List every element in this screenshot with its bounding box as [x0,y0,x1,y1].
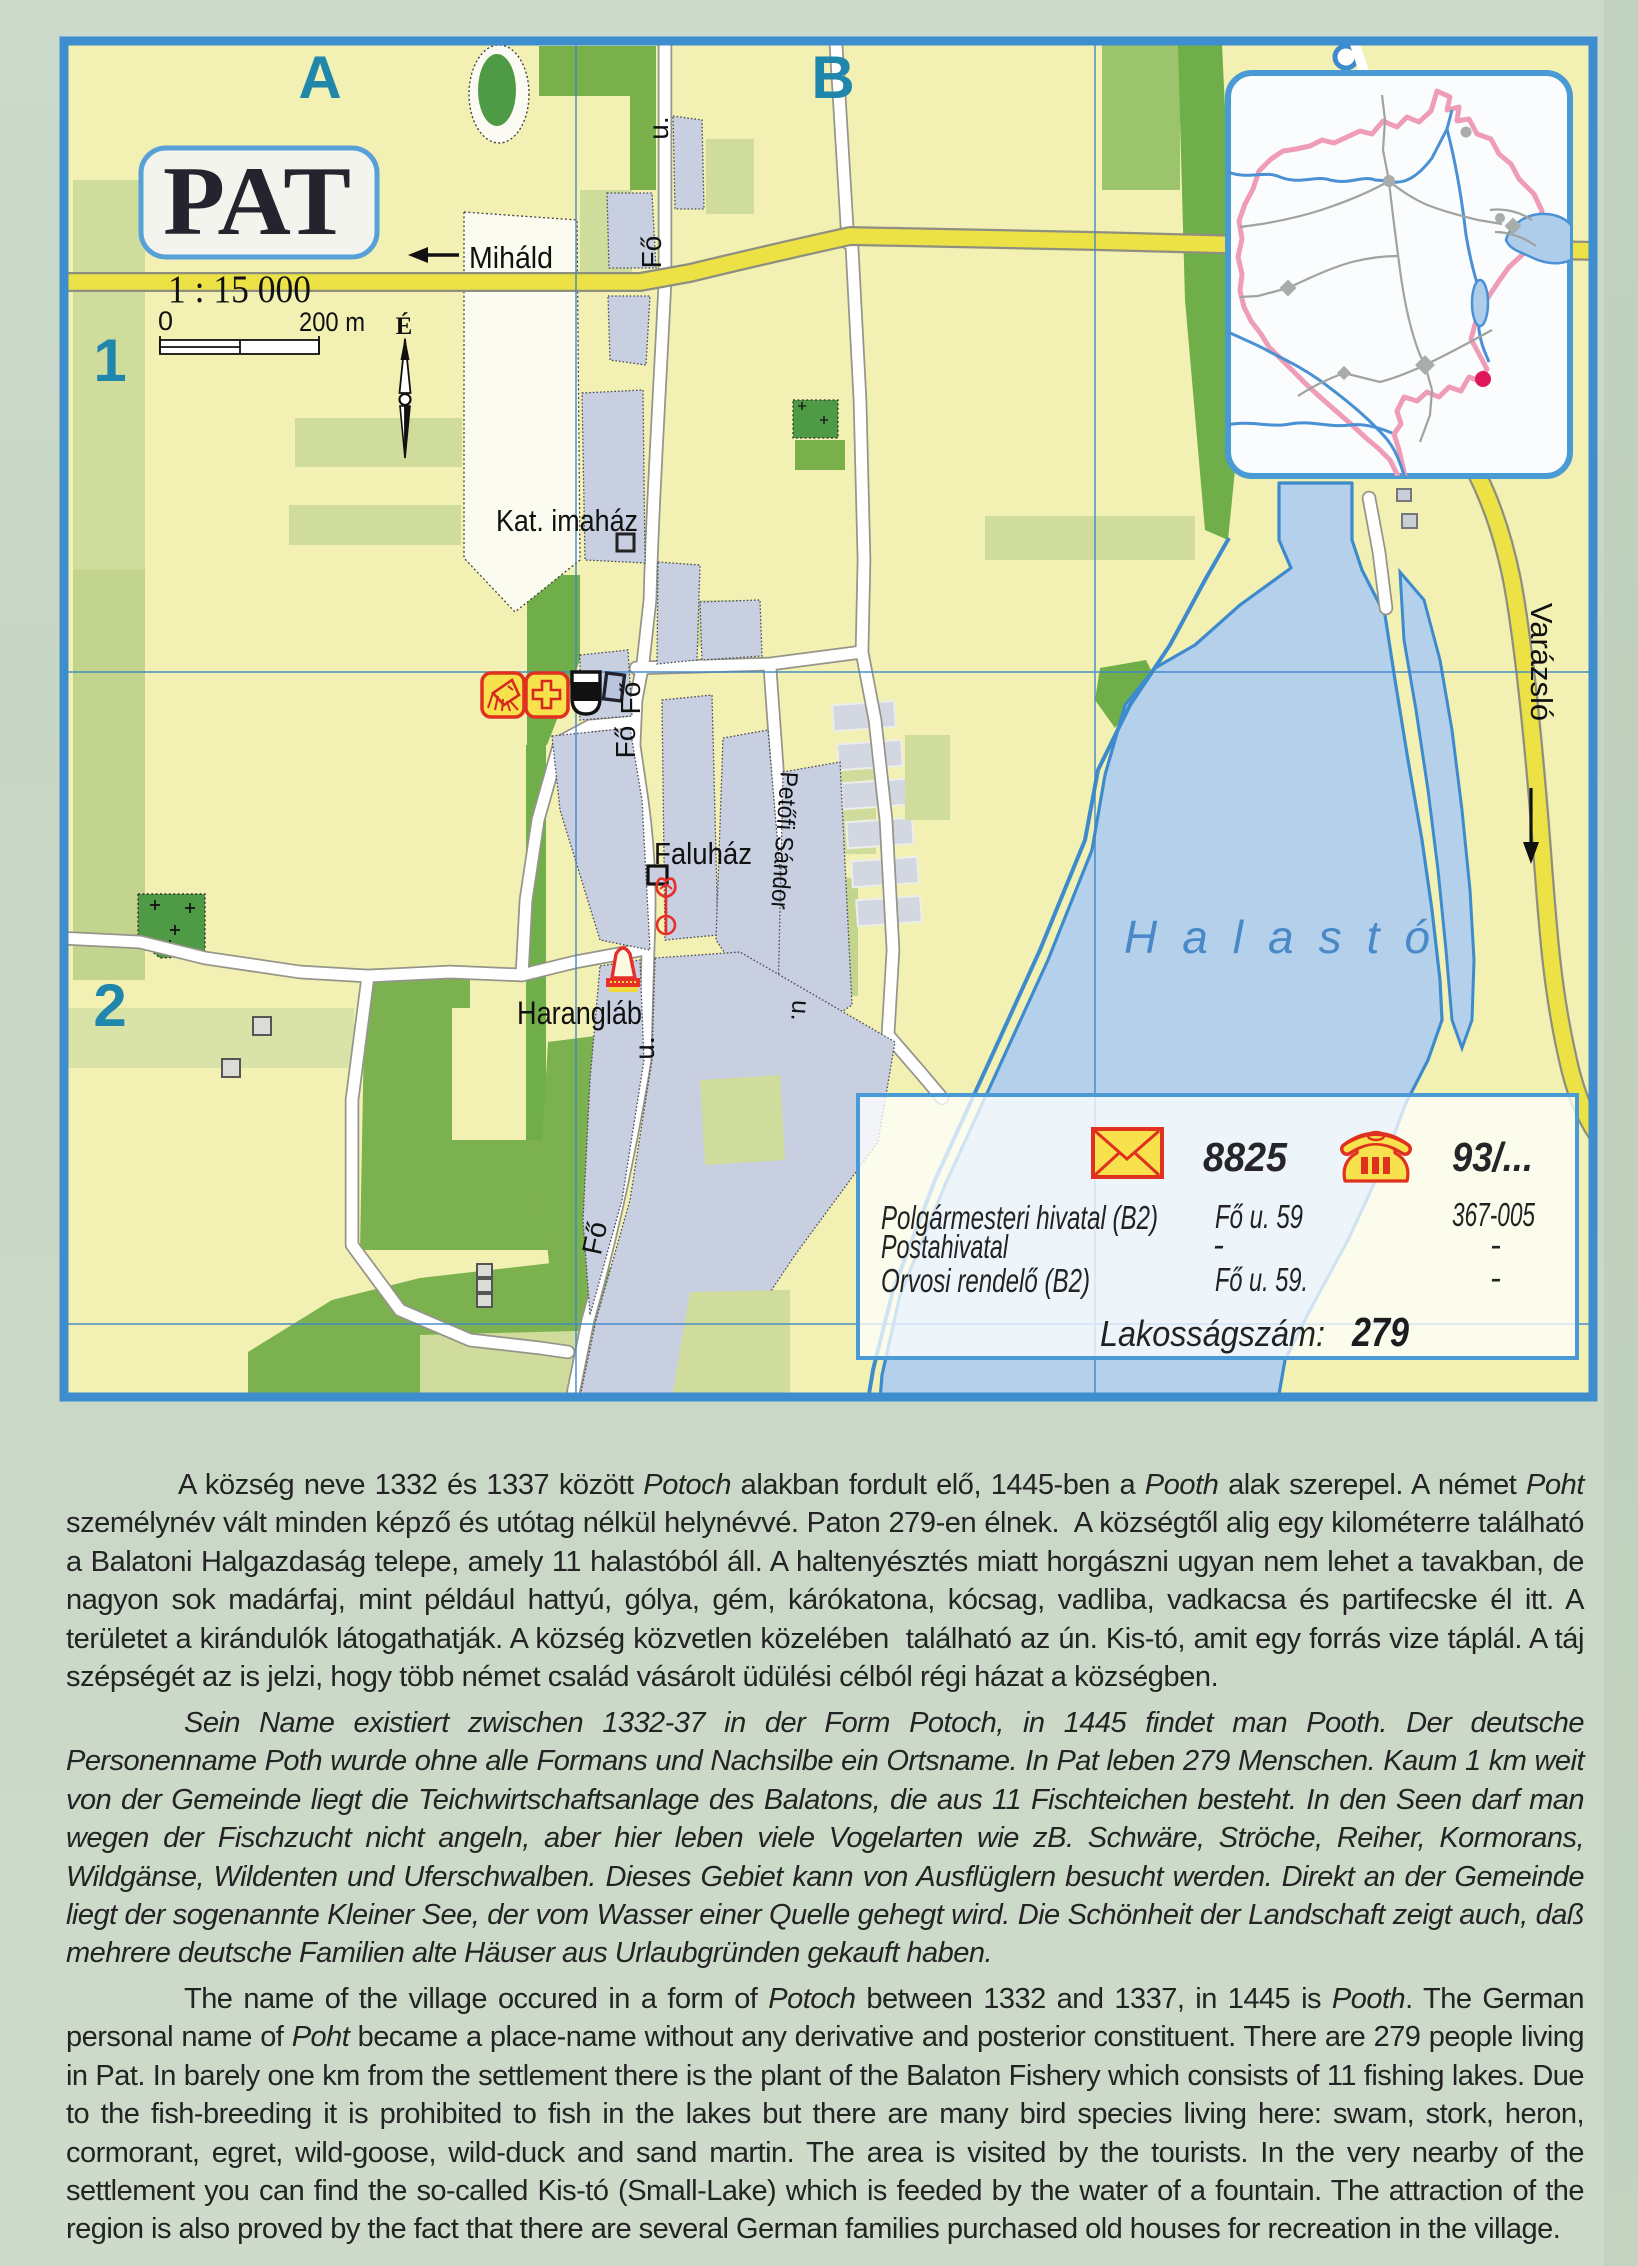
svg-text:1: 1 [93,327,126,394]
svg-text:0: 0 [158,306,173,336]
svg-text:Fő u. 59.: Fő u. 59. [1215,1261,1308,1298]
svg-text:Orvosi rendelő (B2): Orvosi rendelő (B2) [881,1262,1090,1299]
svg-text:Fő: Fő [610,726,641,759]
svg-text:Postahivatal: Postahivatal [881,1228,1009,1265]
svg-text:8825: 8825 [1203,1134,1288,1180]
svg-text:Halastó: Halastó [1124,911,1455,963]
svg-text:u.: u. [629,1036,660,1059]
svg-text:Faluház: Faluház [654,836,752,871]
svg-text:PAT: PAT [163,147,351,256]
svg-text:Fő: Fő [636,236,667,269]
svg-text:Fő: Fő [615,682,646,715]
svg-text:200 m: 200 m [299,307,365,337]
svg-text:Lakosságszám:: Lakosságszám: [1100,1313,1325,1354]
svg-text:É: É [396,312,413,340]
svg-text:279: 279 [1351,1309,1409,1355]
svg-text:-: - [1490,1259,1501,1296]
svg-text:Miháld: Miháld [469,240,553,275]
svg-text:-: - [1213,1226,1224,1263]
svg-text:Harangláb: Harangláb [517,995,642,1031]
svg-text:-: - [1490,1226,1501,1263]
svg-text:Varázsló: Varázsló [1524,603,1559,721]
svg-text:93/...: 93/... [1452,1134,1533,1180]
svg-text:u.: u. [643,116,674,139]
svg-text:u.: u. [785,999,814,1022]
svg-text:A: A [298,44,341,111]
svg-text:Kat. imaház: Kat. imaház [496,503,638,538]
svg-text:B: B [811,44,854,111]
svg-text:1 : 15 000: 1 : 15 000 [168,268,311,311]
svg-text:Fő u. 59: Fő u. 59 [1215,1198,1303,1235]
svg-text:2: 2 [93,972,126,1039]
